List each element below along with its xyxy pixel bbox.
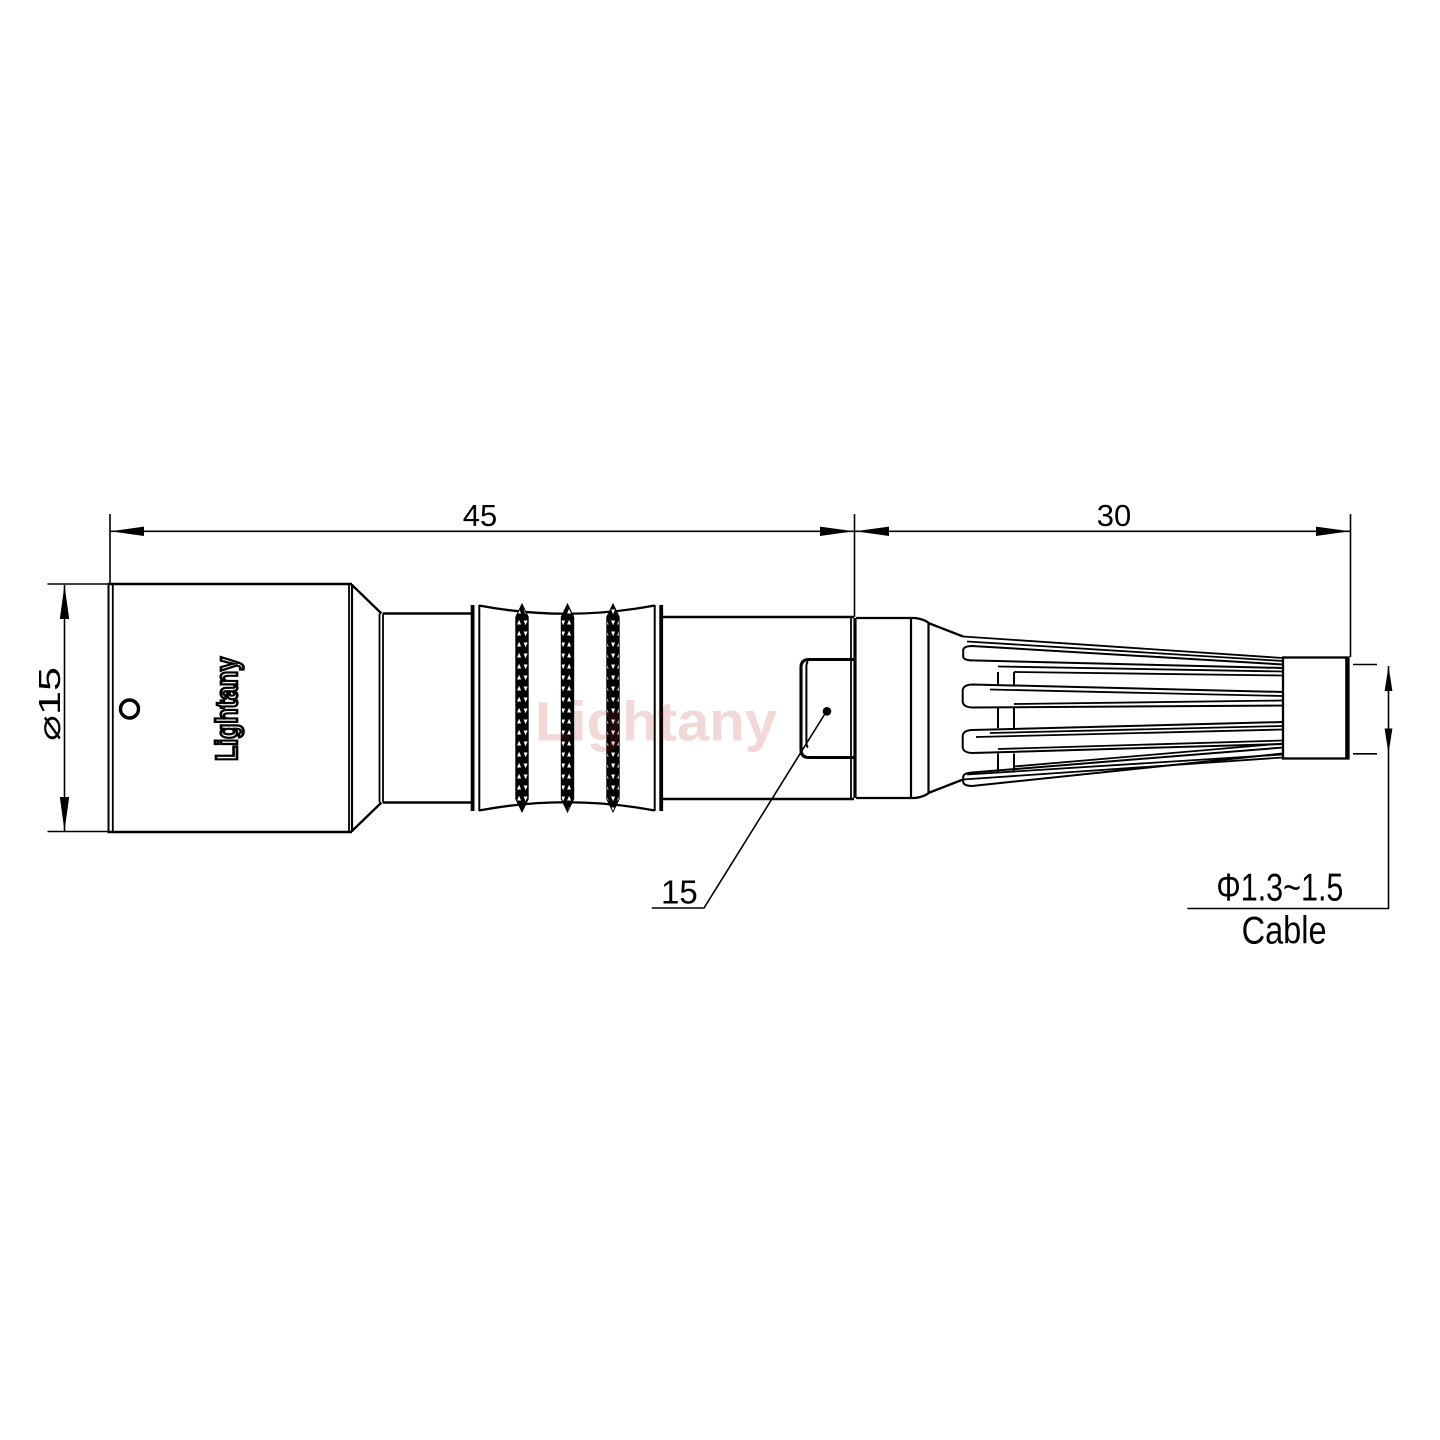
svg-text:Φ1.3~1.5: Φ1.3~1.5 (1216, 866, 1343, 909)
svg-text:15: 15 (661, 874, 698, 911)
svg-text:Cable: Cable (1242, 910, 1327, 953)
svg-text:⌀15: ⌀15 (32, 667, 67, 741)
svg-text:30: 30 (1097, 498, 1131, 533)
svg-text:Lightany: Lightany (535, 689, 777, 752)
svg-text:45: 45 (463, 498, 497, 533)
svg-text:Lightany: Lightany (209, 656, 244, 761)
